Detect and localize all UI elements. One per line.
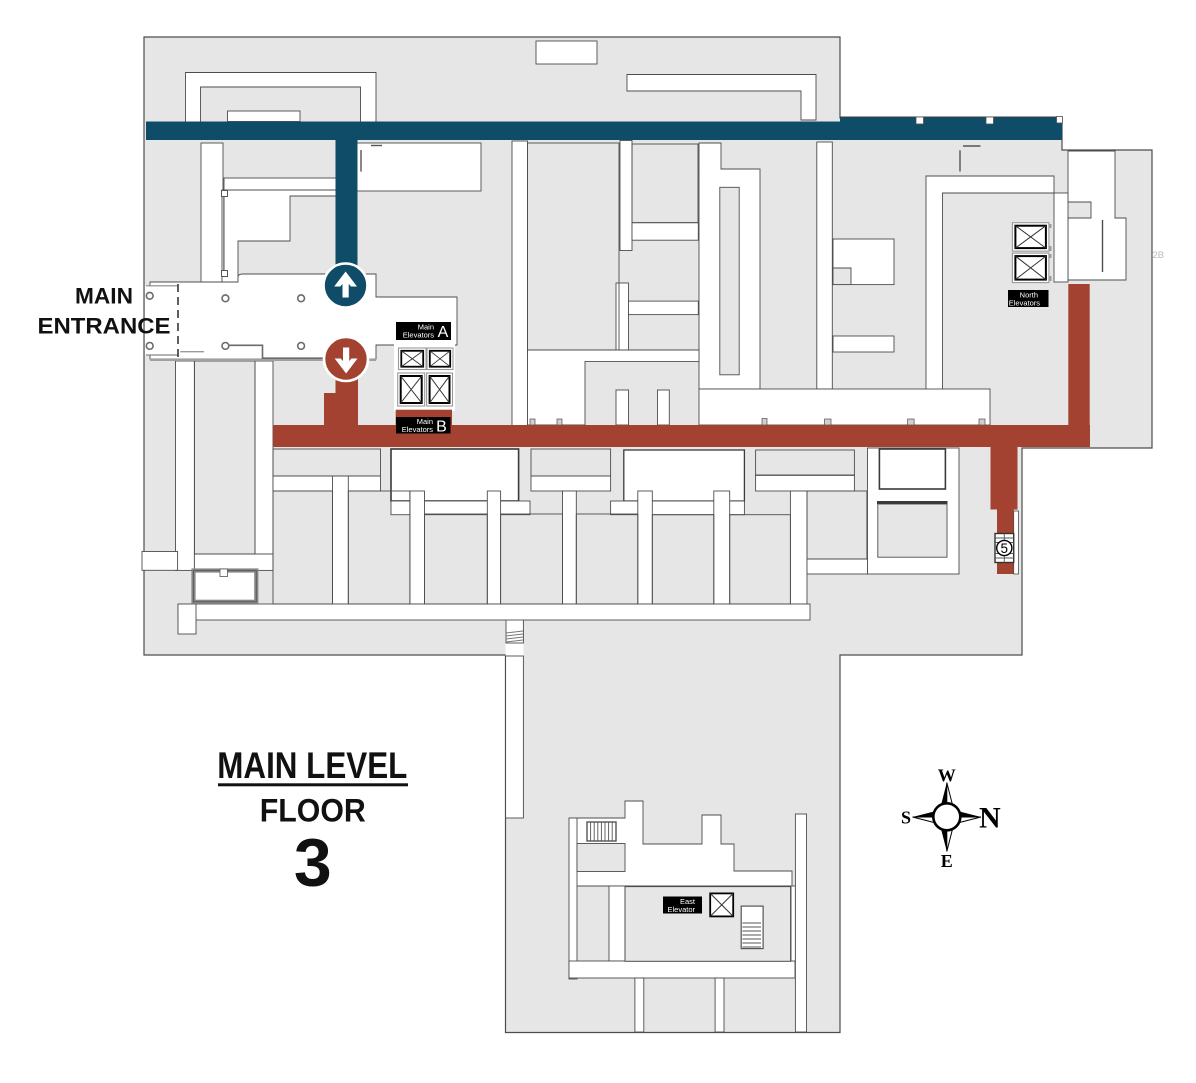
svg-text:E: E [941,851,953,871]
svg-text:MAIN LEVEL: MAIN LEVEL [217,745,407,786]
svg-text:S: S [901,808,911,828]
svg-text:3: 3 [294,825,332,901]
svg-text:5: 5 [1001,541,1009,556]
svg-text:2B: 2B [1153,250,1165,261]
svg-text:B: B [436,419,447,436]
svg-text:Elevators: Elevators [402,425,434,434]
svg-text:MAIN: MAIN [75,284,133,309]
svg-text:FLOOR: FLOOR [260,792,366,828]
svg-text:Elevator: Elevator [667,905,695,914]
svg-text:W: W [938,766,956,786]
svg-text:Elevators: Elevators [403,331,435,340]
svg-text:N: N [979,802,1001,835]
svg-text:ENTRANCE: ENTRANCE [38,314,171,339]
svg-text:A: A [438,324,449,341]
svg-text:Elevators: Elevators [1009,299,1041,308]
